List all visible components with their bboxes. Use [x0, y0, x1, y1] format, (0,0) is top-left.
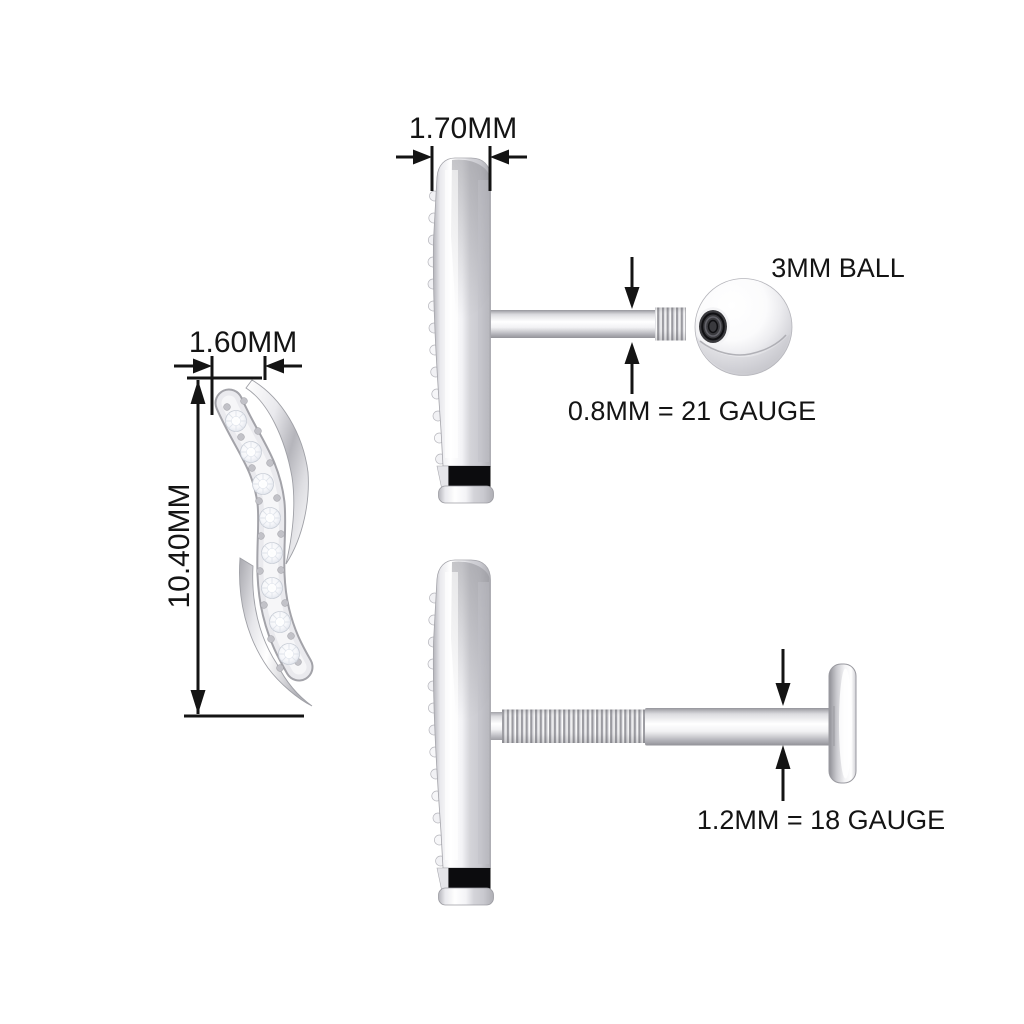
label-front-height: 10.40MM [164, 465, 198, 627]
screw-post [488, 308, 686, 341]
diagram-canvas: 1.70MM 1.60MM 10.40MM 3MM BALL 0.8MM = 2… [0, 0, 1024, 1024]
label-side-thickness: 1.70MM [393, 113, 533, 145]
jewelry-dimension-drawing [0, 0, 1024, 1024]
label-front-width: 1.60MM [173, 327, 313, 359]
labret-post [487, 708, 834, 746]
front-view-earring [224, 380, 312, 706]
screwback-side-view [428, 158, 792, 503]
label-screw-post-gauge: 0.8MM = 21 GAUGE [562, 396, 822, 426]
ball-back [695, 279, 792, 376]
label-flat-post-gauge: 1.2MM = 18 GAUGE [691, 805, 951, 835]
label-ball-size: 3MM BALL [748, 253, 928, 283]
flatback-side-view [428, 560, 856, 905]
flat-disc-back [829, 664, 856, 783]
screwback-dimensions [396, 146, 640, 394]
